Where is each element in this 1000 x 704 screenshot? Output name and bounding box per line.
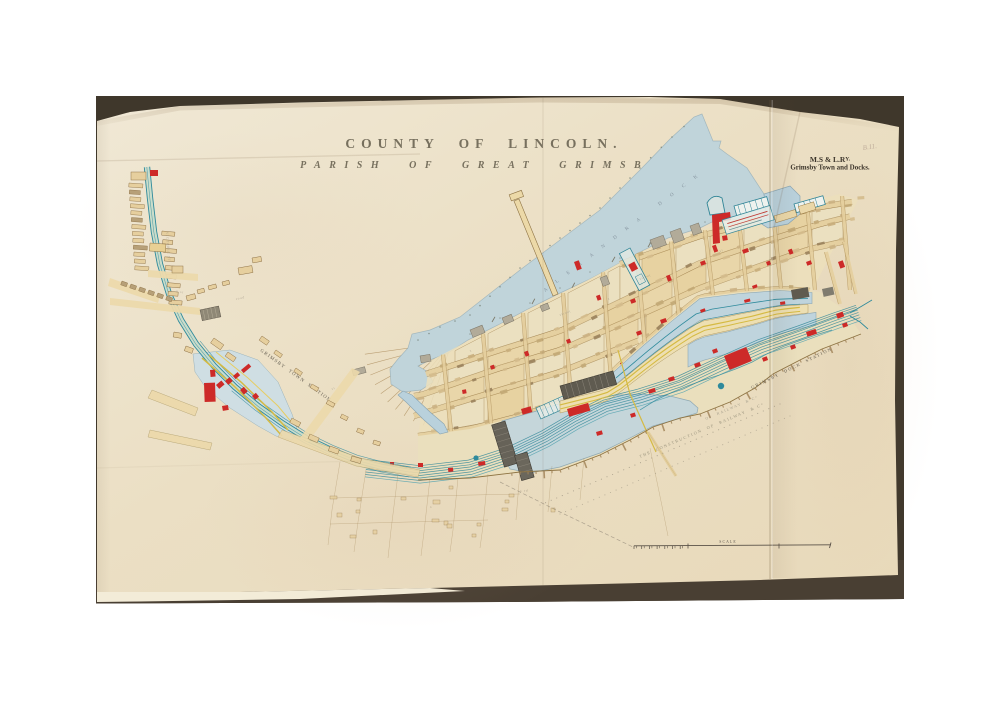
svg-text:Grimsby Town and Docks.: Grimsby Town and Docks. (790, 164, 870, 172)
svg-text:COUNTY OF LINCOLN.: COUNTY OF LINCOLN. (345, 136, 622, 151)
svg-text:SCALE: SCALE (719, 540, 737, 544)
svg-text:x: x (430, 505, 433, 509)
svg-text:PARISH OF GREAT GRIMSBY: PARISH OF GREAT GRIMSBY (300, 160, 664, 171)
